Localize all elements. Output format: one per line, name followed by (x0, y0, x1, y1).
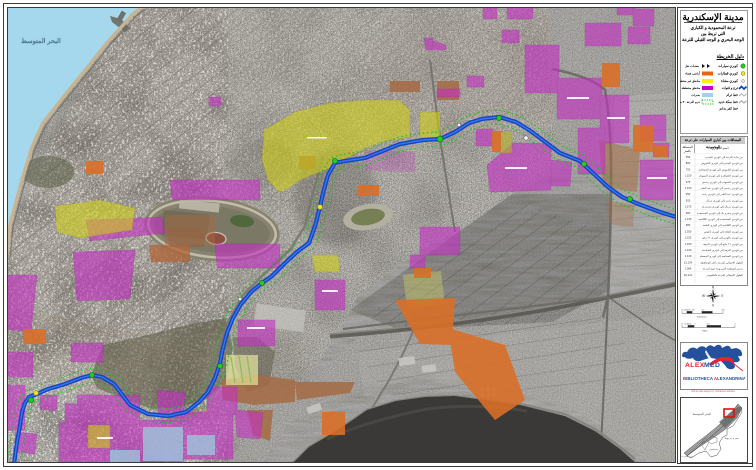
svg-text:580: 580 (686, 223, 691, 227)
svg-text:كوبري قطارات: كوبري قطارات (718, 72, 739, 77)
svg-text:من كوبري المستجدة إلى كوبري ال: من كوبري المستجدة إلى كوبري الكلاحية (699, 217, 744, 222)
svg-text:برج العرب: برج العرب (681, 454, 693, 458)
svg-text:0.450.9: 0.450.9 (684, 309, 692, 311)
svg-text:1,310: 1,310 (685, 248, 692, 252)
svg-text:من كوبري رشدي إلى كوبري عبد ال: من كوبري رشدي إلى كوبري عبد القادر (699, 186, 743, 191)
svg-text:أراضي فضاء: أراضي فضاء (685, 71, 700, 77)
svg-text:N: N (712, 286, 715, 290)
svg-text:960: 960 (686, 211, 691, 215)
svg-text:1,150: 1,150 (685, 174, 692, 178)
svg-text:1.5: 1.5 (707, 323, 711, 325)
svg-text:من كوبري ٢١ مايو إلى كوبري الن: من كوبري ٢١ مايو إلى كوبري النزهة (703, 242, 743, 247)
svg-text:W: W (702, 294, 705, 298)
svg-text:منخفض: منخفض (709, 448, 718, 451)
svg-text:عرض المنطقة المزروعة حول الترع: عرض المنطقة المزروعة حول الترعة (703, 267, 744, 271)
svg-text:22,141: 22,141 (684, 273, 693, 277)
svg-text:من كوبري رانب إلى كوبري غربال: من كوبري رانب إلى كوبري غربال (706, 198, 743, 203)
svg-text:مناطق مخططة: مناطق مخططة (681, 86, 700, 90)
svg-text:Kilometers: Kilometers (697, 315, 707, 318)
svg-text:S: S (712, 304, 714, 308)
svg-text:700: 700 (686, 167, 691, 171)
svg-text:925: 925 (686, 198, 691, 202)
svg-text:من كوبري غربال إلى كوبري محرم: من كوبري غربال إلى كوبري محرم بك (701, 205, 743, 210)
svg-text:خط كفر بدادو: خط كفر بدادو (718, 107, 738, 111)
svg-text:1,450: 1,450 (685, 242, 692, 246)
svg-text:2.7: 2.7 (702, 309, 706, 311)
svg-text:معديات نقل: معديات نقل (685, 64, 700, 68)
svg-text:0.250.5: 0.250.5 (685, 323, 693, 325)
svg-text:خط سكة حديد: خط سكة حديد (718, 100, 738, 104)
svg-text:1: 1 (694, 323, 696, 325)
svg-text:بحيرات: بحيرات (691, 93, 700, 97)
svg-text:من كوبري المنتزه إلى كوبري الن: من كوبري المنتزه إلى كوبري الناموس (701, 161, 744, 166)
svg-text:خط ترام: خط ترام (726, 93, 738, 97)
svg-text:الطول الإجمالي للترعة داخل الم: الطول الإجمالي للترعة داخل المحافظة (700, 260, 743, 265)
svg-text:من بداية الترعة إلى كوبري المن: من بداية الترعة إلى كوبري المنتزه (705, 155, 743, 160)
svg-text:1,125: 1,125 (685, 217, 692, 221)
svg-text:1,575: 1,575 (685, 205, 692, 209)
svg-text:800: 800 (686, 161, 691, 165)
svg-text:1,006: 1,006 (685, 267, 692, 271)
svg-text:BIBLIOTHECA ALEXANDRINA: BIBLIOTHECA ALEXANDRINA (683, 376, 745, 381)
svg-text:بحيرة مريوط: بحيرة مريوط (725, 436, 740, 440)
svg-text:1,350: 1,350 (685, 229, 692, 233)
svg-text:كوبري مشاة: كوبري مشاة (721, 79, 738, 84)
svg-text:1,100: 1,100 (685, 186, 692, 190)
svg-text:475: 475 (686, 180, 691, 184)
svg-text:من كوبري الكلاحية إلى كوبري ال: من كوبري الكلاحية إلى كوبري القلعة (703, 223, 744, 228)
svg-text:ترع و قنوات: ترع و قنوات (722, 86, 739, 90)
svg-text:الطول الإجمالي للترعة بالكيلوم: الطول الإجمالي للترعة بالكيلومتر (706, 273, 744, 278)
svg-text:350: 350 (686, 192, 691, 196)
svg-text:0: 0 (681, 323, 683, 325)
svg-text:من كوبري السيوف إلى كوبري رشدي: من كوبري السيوف إلى كوبري رشدي (702, 180, 744, 185)
svg-text:حرم الترعة ٣٠ متر: حرم الترعة ٣٠ متر (680, 100, 700, 104)
svg-text:ALEX: ALEX (685, 362, 705, 369)
svg-text:MED: MED (704, 362, 720, 369)
svg-text:مناطق غير مخططة: مناطق غير مخططة (680, 79, 700, 83)
svg-text:Miles: Miles (703, 330, 708, 332)
svg-text:1,140: 1,140 (685, 254, 692, 258)
svg-text:1.8: 1.8 (692, 309, 696, 311)
svg-text:من كوبري باكوس إلى كوبري ٢١ ما: من كوبري باكوس إلى كوبري ٢١ مايو (701, 236, 743, 241)
svg-text:من كوبري الصباحية إلى كوبري ال: من كوبري الصباحية إلى كوبري المحطة (700, 254, 744, 259)
svg-text:من كوبري القلعة إلى كوبري باكو: من كوبري القلعة إلى كوبري باكوس (704, 229, 744, 234)
svg-text:البحر المتوسط: البحر المتوسط (21, 37, 61, 45)
svg-text:كوبري سيارات: كوبري سيارات (718, 64, 738, 69)
svg-text:1,225: 1,225 (685, 236, 692, 240)
svg-text:من كوبري الناموس إلى كوبري الع: من كوبري الناموس إلى كوبري العصافرة (698, 167, 743, 172)
svg-text:من كوبري العصافرة إلى كوبري ال: من كوبري العصافرة إلى كوبري السيوف (699, 174, 744, 179)
svg-text:3.6: 3.6 (722, 309, 726, 311)
svg-text:من كوبري النزهة إلى كوبري الصب: من كوبري النزهة إلى كوبري الصباحية (702, 248, 744, 253)
svg-text:E: E (721, 294, 723, 298)
svg-text:من كوبري محرم بك إلى كوبري الم: من كوبري محرم بك إلى كوبري المستجدة (697, 211, 744, 216)
svg-text:21,134: 21,134 (684, 260, 693, 264)
svg-text:2: 2 (734, 323, 736, 325)
svg-text:650: 650 (686, 155, 691, 159)
svg-text:البحر المتوسط: البحر المتوسط (693, 412, 712, 416)
svg-text:من كوبري عبد القادر إلى كوبري: من كوبري عبد القادر إلى كوبري رانب (702, 192, 744, 197)
